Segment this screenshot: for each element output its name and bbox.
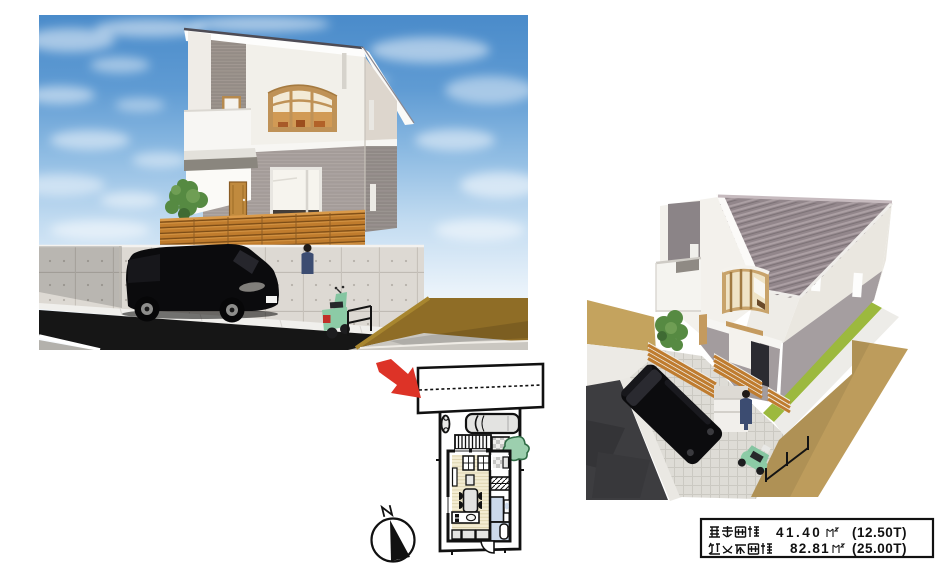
svg-text:82.81: 82.81 xyxy=(790,541,830,556)
svg-text:41.40: 41.40 xyxy=(776,525,822,540)
svg-text:(12.50T): (12.50T) xyxy=(852,525,907,540)
svg-text:(25.00T): (25.00T) xyxy=(852,541,907,556)
